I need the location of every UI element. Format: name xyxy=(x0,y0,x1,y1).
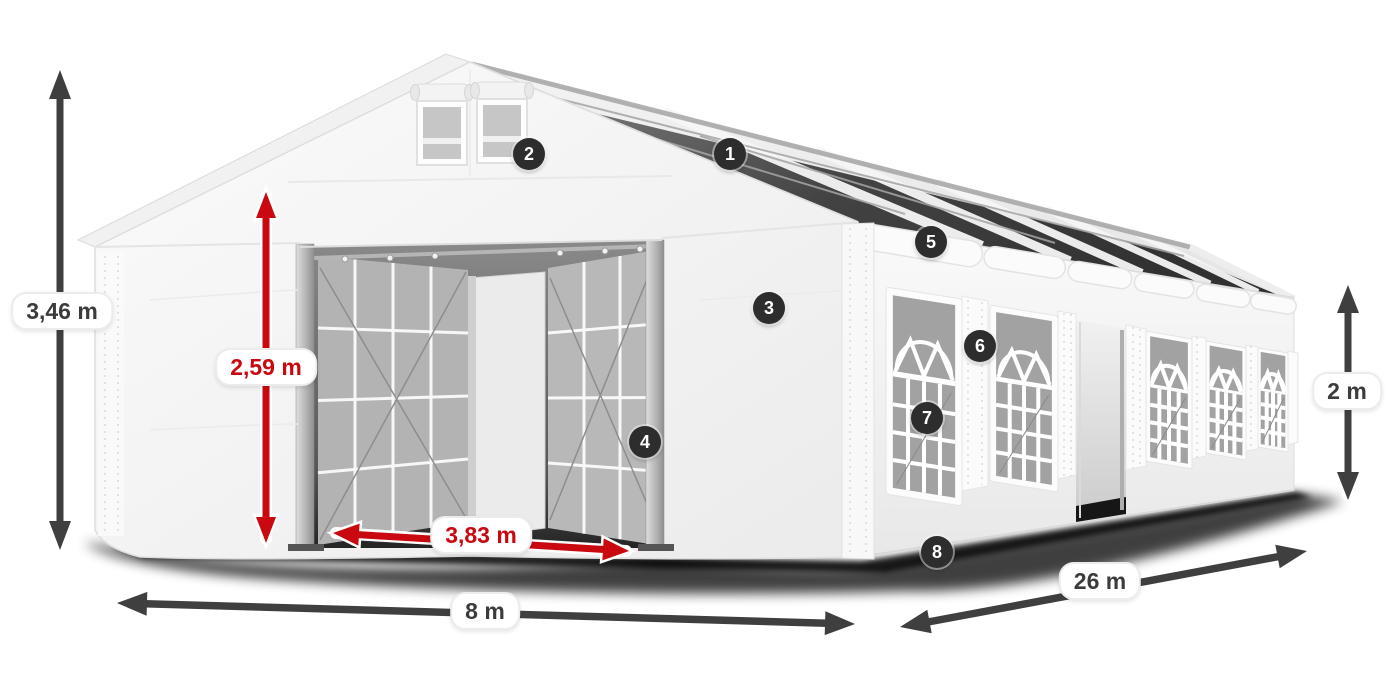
callout-badge-6[interactable]: 6 xyxy=(964,330,996,362)
callout-badge-7[interactable]: 7 xyxy=(911,402,943,434)
entrance-left-door xyxy=(318,256,468,545)
dim-label-entrance-width: 3,83 m xyxy=(430,516,532,554)
callout-badge-8[interactable]: 8 xyxy=(921,536,953,568)
callout-badge-5[interactable]: 5 xyxy=(915,226,947,258)
tent-illustration xyxy=(0,0,1400,700)
side-window-5 xyxy=(1258,348,1288,452)
callout-badge-4[interactable]: 4 xyxy=(629,426,661,458)
side-window-1 xyxy=(886,287,962,506)
callout-badge-3[interactable]: 3 xyxy=(753,292,785,324)
side-window-4 xyxy=(1206,341,1246,460)
dim-label-end-width: 8 m xyxy=(450,592,520,630)
entrance-right-door xyxy=(548,250,656,545)
tent-dimension-diagram: 3,46 m 2,59 m 3,83 m 8 m 26 m 2 m 1 2 3 … xyxy=(0,0,1400,700)
dim-label-total-height: 3,46 m xyxy=(11,292,113,330)
dim-label-side-wall-height: 2 m xyxy=(1312,372,1382,410)
side-window-2 xyxy=(990,305,1058,492)
callout-badge-1[interactable]: 1 xyxy=(714,138,746,170)
gable-vent-left xyxy=(411,84,474,165)
callout-badge-2[interactable]: 2 xyxy=(513,138,545,170)
corner-strap xyxy=(842,223,874,559)
dim-label-side-length: 26 m xyxy=(1059,562,1141,600)
dim-label-entrance-height: 2,59 m xyxy=(215,348,317,386)
side-door-opening xyxy=(1076,320,1126,522)
entrance-opening xyxy=(288,240,674,551)
side-window-3 xyxy=(1146,331,1192,469)
